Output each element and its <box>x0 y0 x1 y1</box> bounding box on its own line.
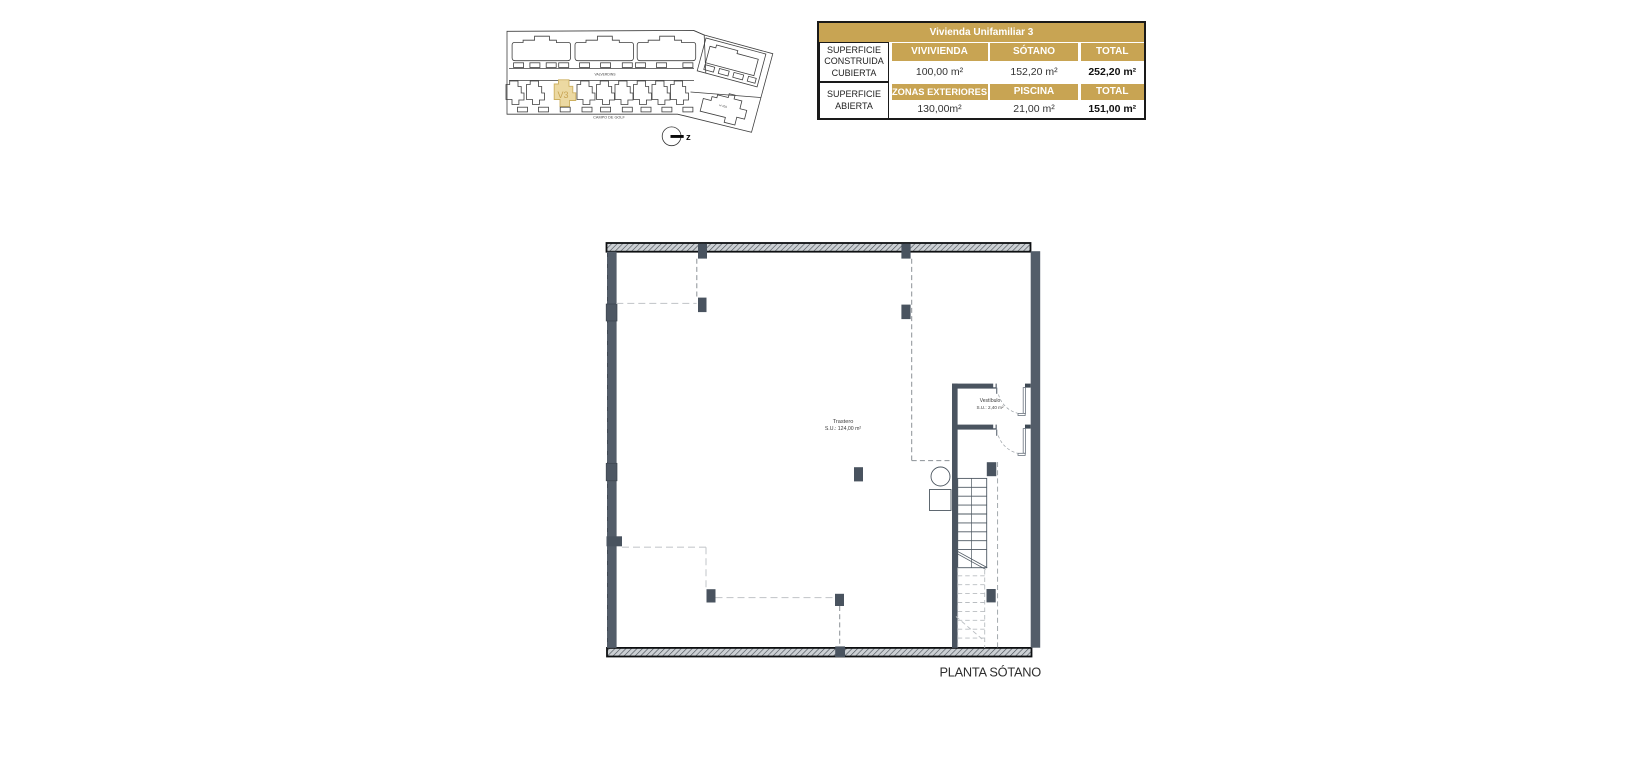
svg-text:S.U.: 2,40 m²: S.U.: 2,40 m² <box>976 405 1004 410</box>
svg-text:V3: V3 <box>557 90 568 100</box>
svg-text:H-10A: H-10A <box>719 103 728 109</box>
svg-text:Vestíbulo: Vestíbulo <box>980 398 1001 404</box>
svg-text:VALVERDINS: VALVERDINS <box>595 73 617 77</box>
svg-text:PLANTA SÓTANO: PLANTA SÓTANO <box>939 665 1041 680</box>
svg-text:S.U.: 124,00 m²: S.U.: 124,00 m² <box>825 426 862 432</box>
svg-text:z: z <box>686 132 691 143</box>
svg-text:Trastero: Trastero <box>833 419 854 425</box>
svg-text:CAMPO DE GOLF: CAMPO DE GOLF <box>593 116 625 120</box>
